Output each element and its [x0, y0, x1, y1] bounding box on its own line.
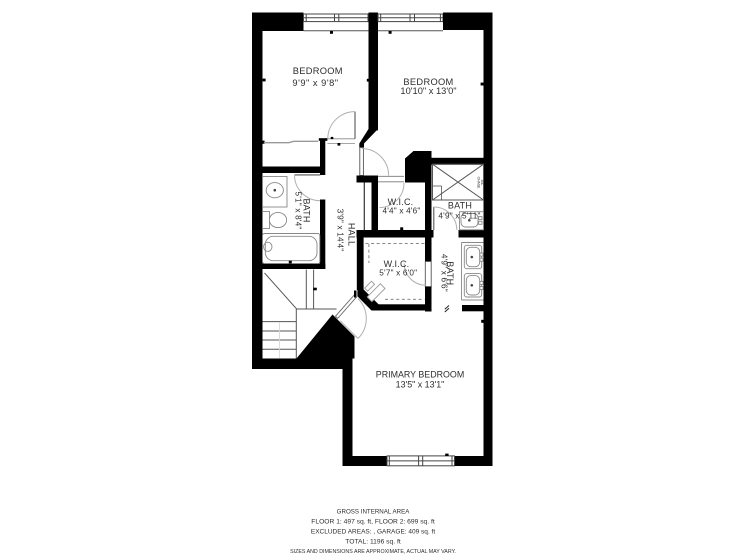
svg-text:13'5" x 13'1": 13'5" x 13'1"	[396, 379, 445, 389]
svg-text:3'9" x 14'4": 3'9" x 14'4"	[336, 209, 345, 252]
svg-text:BATH: BATH	[448, 201, 472, 211]
svg-text:5'1" x 8'4": 5'1" x 8'4"	[294, 192, 303, 230]
svg-text:FLOOR 1: 497 sq. ft, FLOOR 2:: FLOOR 1: 497 sq. ft, FLOOR 2: 699 sq. ft	[311, 518, 435, 525]
svg-text:GROSS INTERNAL AREA: GROSS INTERNAL AREA	[337, 509, 411, 516]
svg-text:TOTAL: 1196 sq. ft: TOTAL: 1196 sq. ft	[345, 538, 401, 545]
svg-text:9'9" x 9'8": 9'9" x 9'8"	[292, 78, 338, 88]
svg-text:W.I.C.: W.I.C.	[384, 259, 410, 269]
svg-text:4'9" x 5'11": 4'9" x 5'11"	[438, 212, 480, 221]
svg-text:CHASE: CHASE	[477, 177, 481, 189]
svg-text:EXCLUDED AREAS: , GARAGE: 409: EXCLUDED AREAS: , GARAGE: 409 sq. ft	[311, 528, 435, 535]
svg-text:HALL: HALL	[347, 223, 357, 246]
svg-text:BEDROOM: BEDROOM	[293, 66, 343, 76]
svg-text:W.I.C.: W.I.C.	[388, 197, 414, 207]
svg-text:5'7" x 6'0": 5'7" x 6'0"	[379, 269, 417, 278]
svg-text:4'4" x 4'6": 4'4" x 4'6"	[383, 207, 421, 216]
svg-text:10'10" x 13'0": 10'10" x 13'0"	[400, 86, 456, 96]
svg-text:SIZES AND DIMENSIONS ARE APPRO: SIZES AND DIMENSIONS ARE APPROXIMATE, AC…	[290, 549, 456, 555]
svg-text:4'9" x 6'6": 4'9" x 6'6"	[439, 254, 448, 292]
svg-text:PRIMARY BEDROOM: PRIMARY BEDROOM	[376, 369, 464, 379]
